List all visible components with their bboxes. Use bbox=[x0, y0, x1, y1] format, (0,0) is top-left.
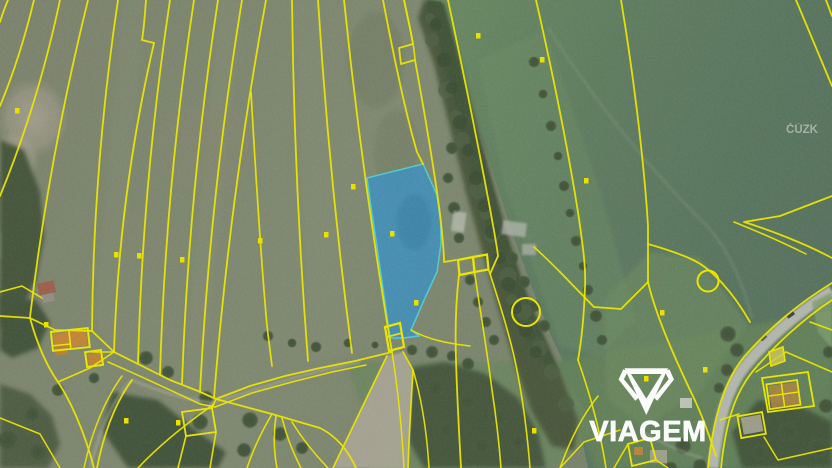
svg-text:ČÚZK: ČÚZK bbox=[786, 123, 819, 136]
svg-text:VIAGEM: VIAGEM bbox=[589, 416, 706, 448]
